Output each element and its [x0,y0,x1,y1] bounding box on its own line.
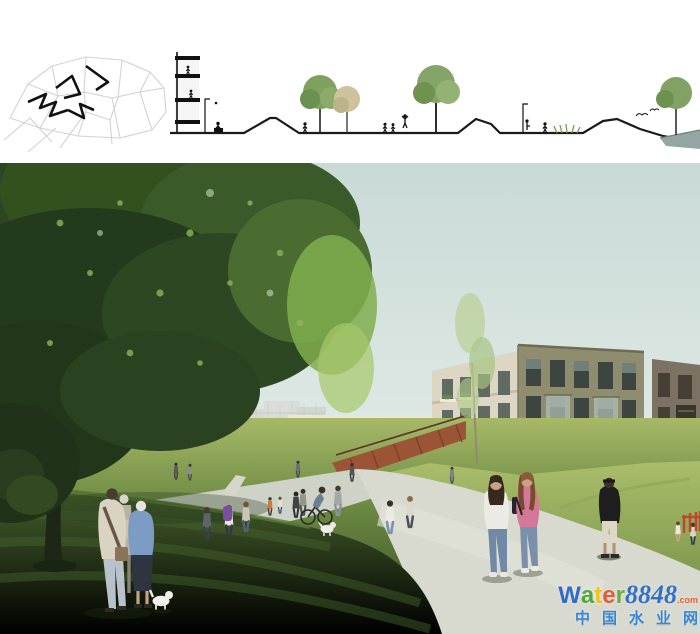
watermark: Water8848.com 中国水业网 [558,582,698,626]
watermark-letter: e [602,584,615,608]
watermark-letter: W [558,584,581,608]
section-ground-line [170,118,700,143]
shrub [6,475,58,515]
watermark-letter: a [581,584,594,608]
section-trees [300,65,692,135]
site-plan-route [28,66,108,118]
watermark-number: 8848 [625,580,677,609]
section-grass-tuft [554,124,580,133]
section-building [175,52,200,133]
watermark-brand: Water8848.com [558,582,698,608]
purple-backpack [223,506,232,521]
presentation-board: Water8848.com 中国水业网 [0,0,700,634]
section-bird-dot [215,102,218,105]
diagram-band [0,0,700,163]
watermark-letter: r [616,584,625,608]
section-birds [636,109,659,116]
section-drawing [170,52,700,149]
section-water [660,130,700,149]
concept-diagrams [0,0,700,163]
watermark-chinese-text: 中国水业网 [558,611,700,626]
rendering-panel: Water8848.com 中国水业网 [0,163,700,634]
watermark-suffix: .com [677,595,698,605]
site-plan-diagram [4,57,166,152]
park-rendering [0,163,700,634]
